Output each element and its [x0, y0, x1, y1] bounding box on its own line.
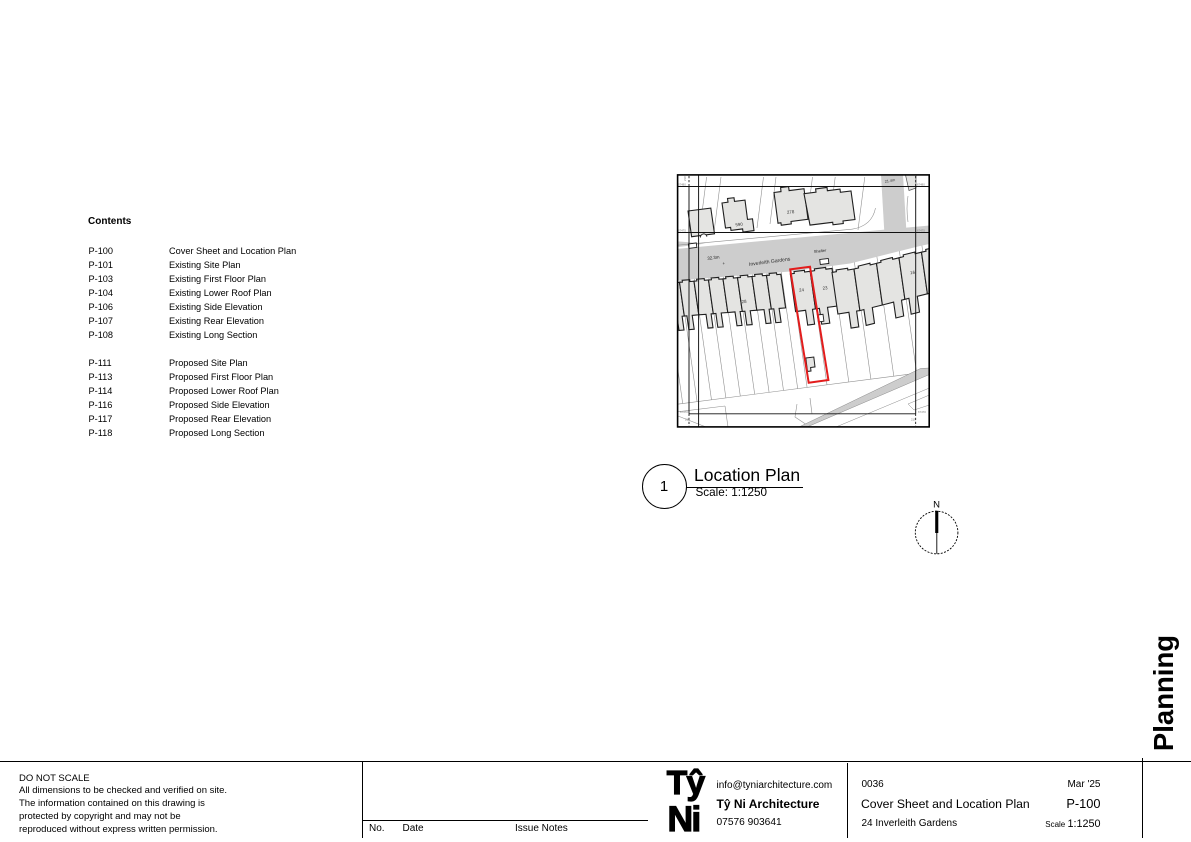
- svg-text:218: 218: [685, 418, 690, 422]
- svg-text:67470: 67470: [918, 410, 926, 414]
- svg-text:219: 219: [911, 418, 916, 422]
- svg-text:67475: 67475: [917, 229, 925, 233]
- svg-text:67470: 67470: [680, 410, 688, 414]
- svg-text:67480: 67480: [678, 183, 686, 187]
- svg-text:67475: 67475: [678, 229, 686, 233]
- svg-text:278: 278: [787, 209, 795, 215]
- svg-text:N: N: [933, 500, 940, 511]
- svg-text:67480: 67480: [917, 183, 925, 187]
- svg-text:590: 590: [735, 222, 743, 228]
- svg-text:218: 218: [683, 176, 687, 181]
